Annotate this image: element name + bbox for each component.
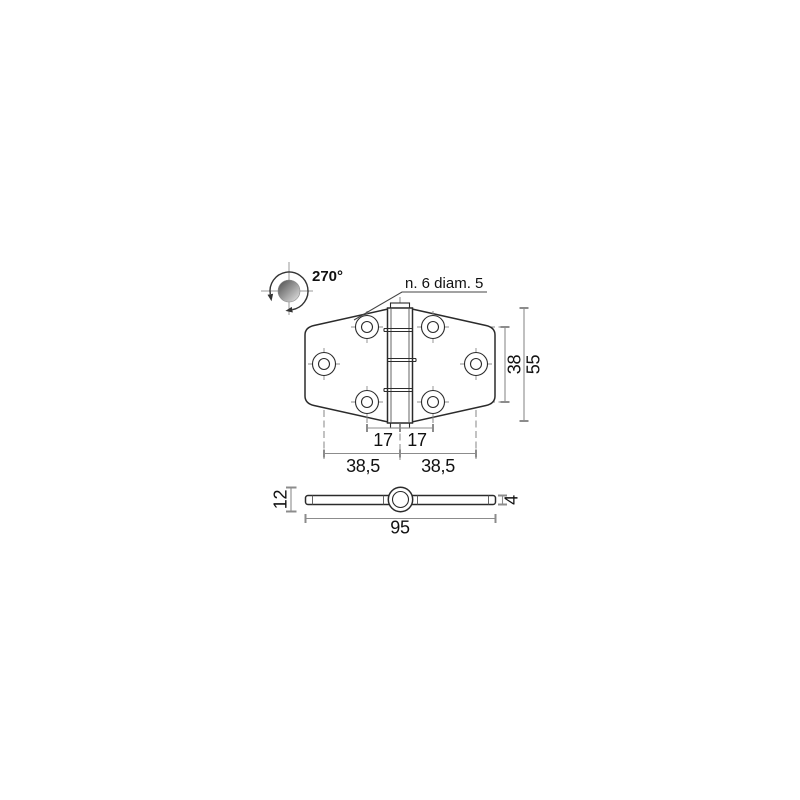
knuckle-barrel (384, 303, 416, 428)
dim-label-12: 12 (271, 490, 291, 510)
pivot-ball (278, 280, 300, 302)
dim-label-95: 95 (390, 518, 410, 538)
rotation-angle-label: 270° (312, 268, 343, 285)
hole-inner (362, 397, 373, 408)
knuckle-circle-inner (393, 492, 409, 508)
dim-label-17-left: 17 (373, 430, 393, 450)
dim-label-385-right: 38,5 (421, 456, 455, 476)
dim-label-385-left: 38,5 (346, 456, 380, 476)
hole-inner (471, 359, 482, 370)
dim-label-4: 4 (502, 495, 522, 505)
hole-inner (428, 397, 439, 408)
hole-inner (362, 322, 373, 333)
hole-inner (319, 359, 330, 370)
dim-label-38: 38 (505, 355, 525, 375)
dimension-hole-rows-38: 38 (501, 327, 525, 402)
plan-view: n. 6 diam. 5 38 55 17 17 38,5 38,5 (305, 275, 544, 476)
arc-arrow-left (268, 294, 274, 302)
hinge-technical-drawing: 270° (0, 0, 800, 800)
dimension-overall-height-55: 55 (520, 308, 544, 421)
hole-inner (428, 322, 439, 333)
dimension-overall-width-95: 95 (306, 514, 496, 538)
dimension-half-width-385: 38,5 38,5 (324, 450, 476, 477)
rotation-indicator: 270° (261, 262, 343, 315)
hole-callout-label: n. 6 diam. 5 (405, 275, 483, 292)
drawing-canvas: 270° (0, 0, 800, 800)
dimension-knuckle-12: 12 (271, 488, 297, 512)
dim-label-55: 55 (524, 355, 544, 375)
side-view: 12 4 95 (271, 487, 522, 537)
dimension-thickness-4: 4 (498, 495, 522, 505)
dim-label-17-right: 17 (407, 430, 427, 450)
